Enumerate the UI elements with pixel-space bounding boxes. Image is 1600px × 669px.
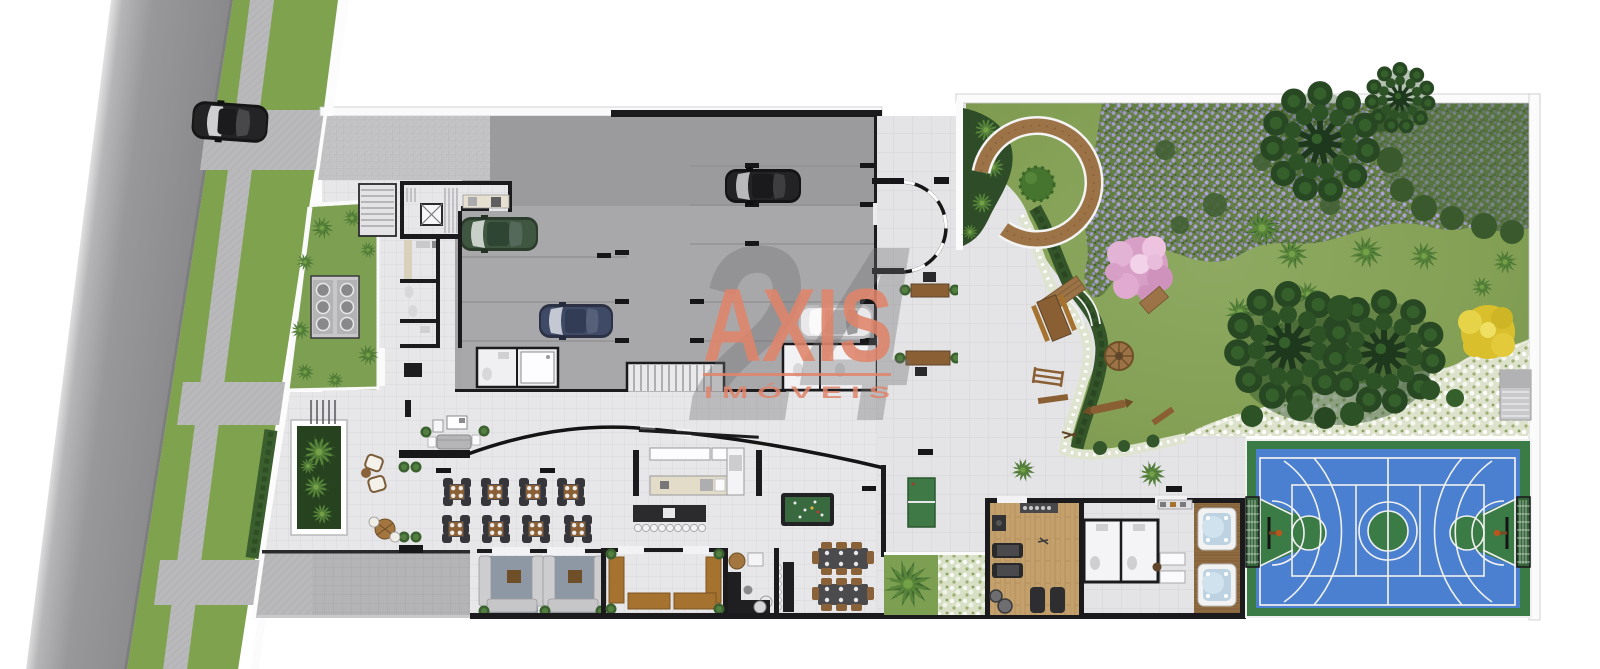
svg-text:I M Ó V E I S: I M Ó V E I S: [704, 383, 890, 402]
svg-text:AXIS: AXIS: [703, 268, 893, 384]
